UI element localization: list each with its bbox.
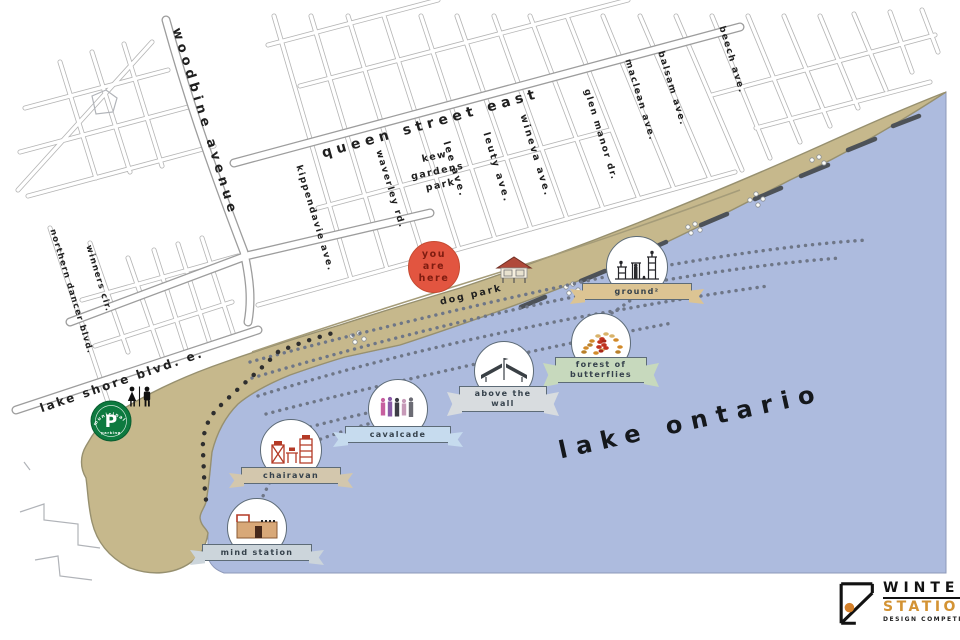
above-the-wall-illustration bbox=[478, 355, 530, 387]
logo-line-winter: WINTER bbox=[883, 580, 960, 599]
winter-stations-logo-mark bbox=[832, 580, 876, 628]
winter-stations-logo: WINTER STATIONS DESIGN COMPETITION bbox=[832, 580, 960, 628]
ground-illustration bbox=[611, 249, 663, 285]
mind-station-illustration bbox=[231, 512, 283, 544]
station-banner-ground[interactable]: ground² bbox=[582, 283, 692, 300]
winter-stations-logo-text: WINTER STATIONS DESIGN COMPETITION bbox=[883, 580, 960, 623]
station-banner-forest-of-butterflies[interactable]: forest of butterflies bbox=[555, 357, 647, 383]
parking-icon: municipal P parking bbox=[91, 401, 131, 441]
logo-line-stations: STATIONS bbox=[883, 599, 960, 615]
logo-line-design-competition: DESIGN COMPETITION bbox=[883, 616, 960, 623]
chairavan-illustration bbox=[266, 433, 316, 467]
you-are-here-marker: you are here bbox=[408, 241, 460, 293]
station-banner-above-the-wall[interactable]: above the wall bbox=[459, 386, 547, 412]
station-banner-cavalcade[interactable]: cavalcade bbox=[345, 426, 451, 443]
cavalcade-illustration bbox=[375, 394, 421, 424]
forest-of-butterflies-illustration bbox=[576, 326, 626, 360]
svg-text:parking: parking bbox=[101, 431, 121, 435]
station-banner-mind-station[interactable]: mind station bbox=[202, 544, 312, 561]
svg-text:P: P bbox=[105, 412, 117, 432]
station-banner-chairavan[interactable]: chairavan bbox=[241, 467, 341, 484]
map-canvas: municipal P parking bbox=[0, 0, 960, 640]
beaches-winter-stations-map: municipal P parking woodbine avenue quee… bbox=[0, 0, 960, 640]
